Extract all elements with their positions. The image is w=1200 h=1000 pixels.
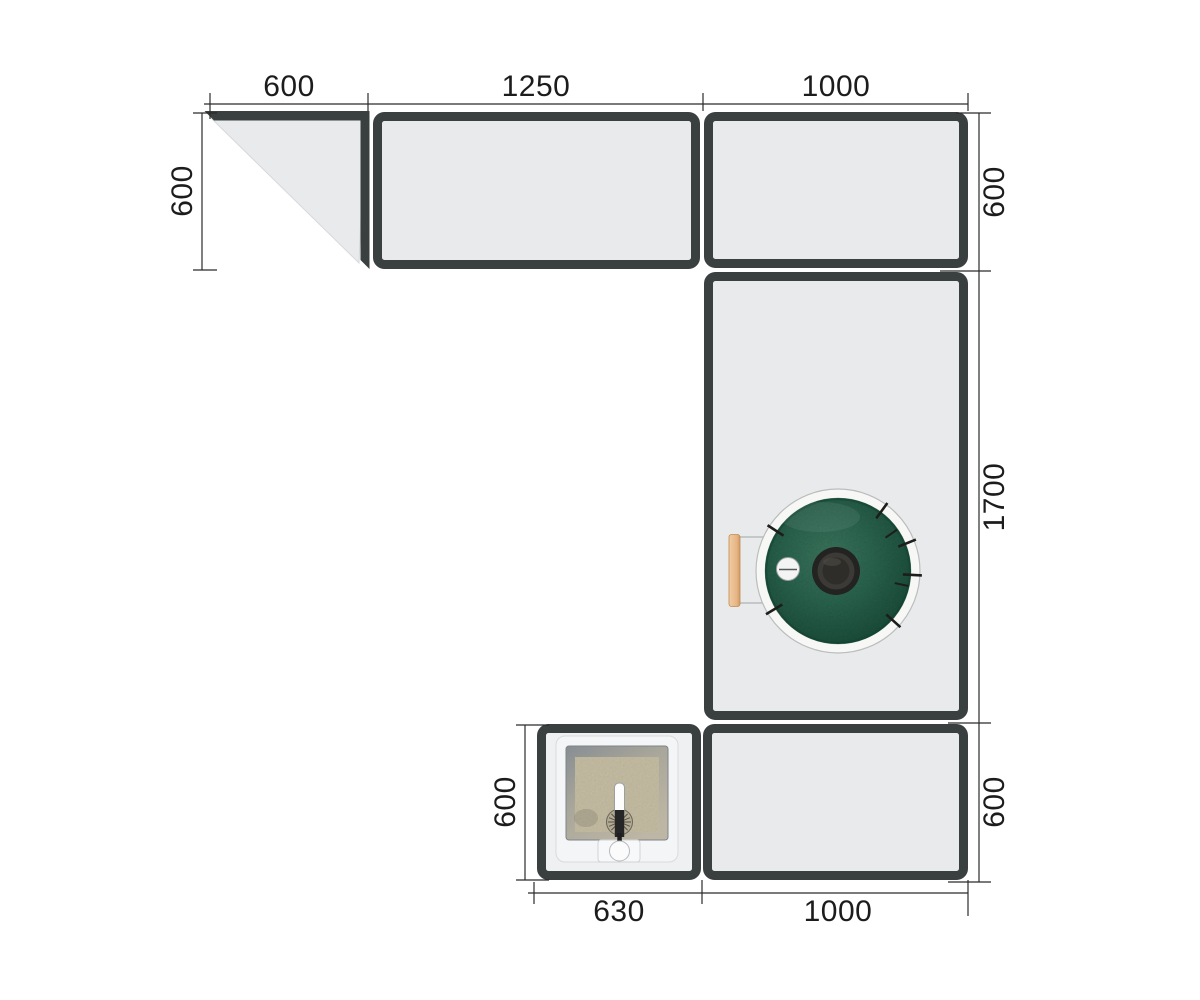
dim-label-right-top-depth: 600 — [978, 166, 1012, 218]
dim-label-sink-width: 630 — [593, 895, 645, 929]
panel-corner-triangle — [205, 111, 370, 269]
plan-drawing — [0, 0, 1200, 1000]
sink-basin-shadow — [574, 809, 598, 827]
grill-handle-bar — [729, 535, 740, 607]
dim-label-top-right: 1000 — [802, 70, 871, 104]
corner-triangle-top-edge — [205, 111, 370, 121]
dim-label-right-column: 1700 — [978, 463, 1012, 532]
grill-dome-highlight — [780, 502, 860, 532]
dim-label-top-counter: 1250 — [502, 70, 571, 104]
dim-label-right-bottom-depth: 600 — [978, 776, 1012, 828]
panel-counter-1000-top — [709, 117, 964, 264]
faucet-spout-head — [615, 810, 624, 837]
faucet-knob — [610, 841, 630, 861]
kitchen-plan-canvas: 600 1250 1000 600 600 1700 600 600 630 1… — [0, 0, 1200, 1000]
grill-vent-cap — [812, 547, 860, 595]
dim-label-left-depth: 600 — [166, 165, 200, 217]
corner-triangle-right-edge — [361, 111, 370, 269]
grill-thermometer — [777, 558, 800, 581]
sink-fixture — [556, 736, 678, 862]
dim-label-bottom-right-width: 1000 — [804, 895, 873, 929]
corner-triangle-surface — [212, 119, 365, 263]
dim-label-sink-depth: 600 — [489, 776, 523, 828]
dim-label-top-corner: 600 — [263, 70, 315, 104]
panel-counter-1250 — [378, 117, 696, 265]
panel-counter-1000-bottom — [708, 729, 964, 876]
